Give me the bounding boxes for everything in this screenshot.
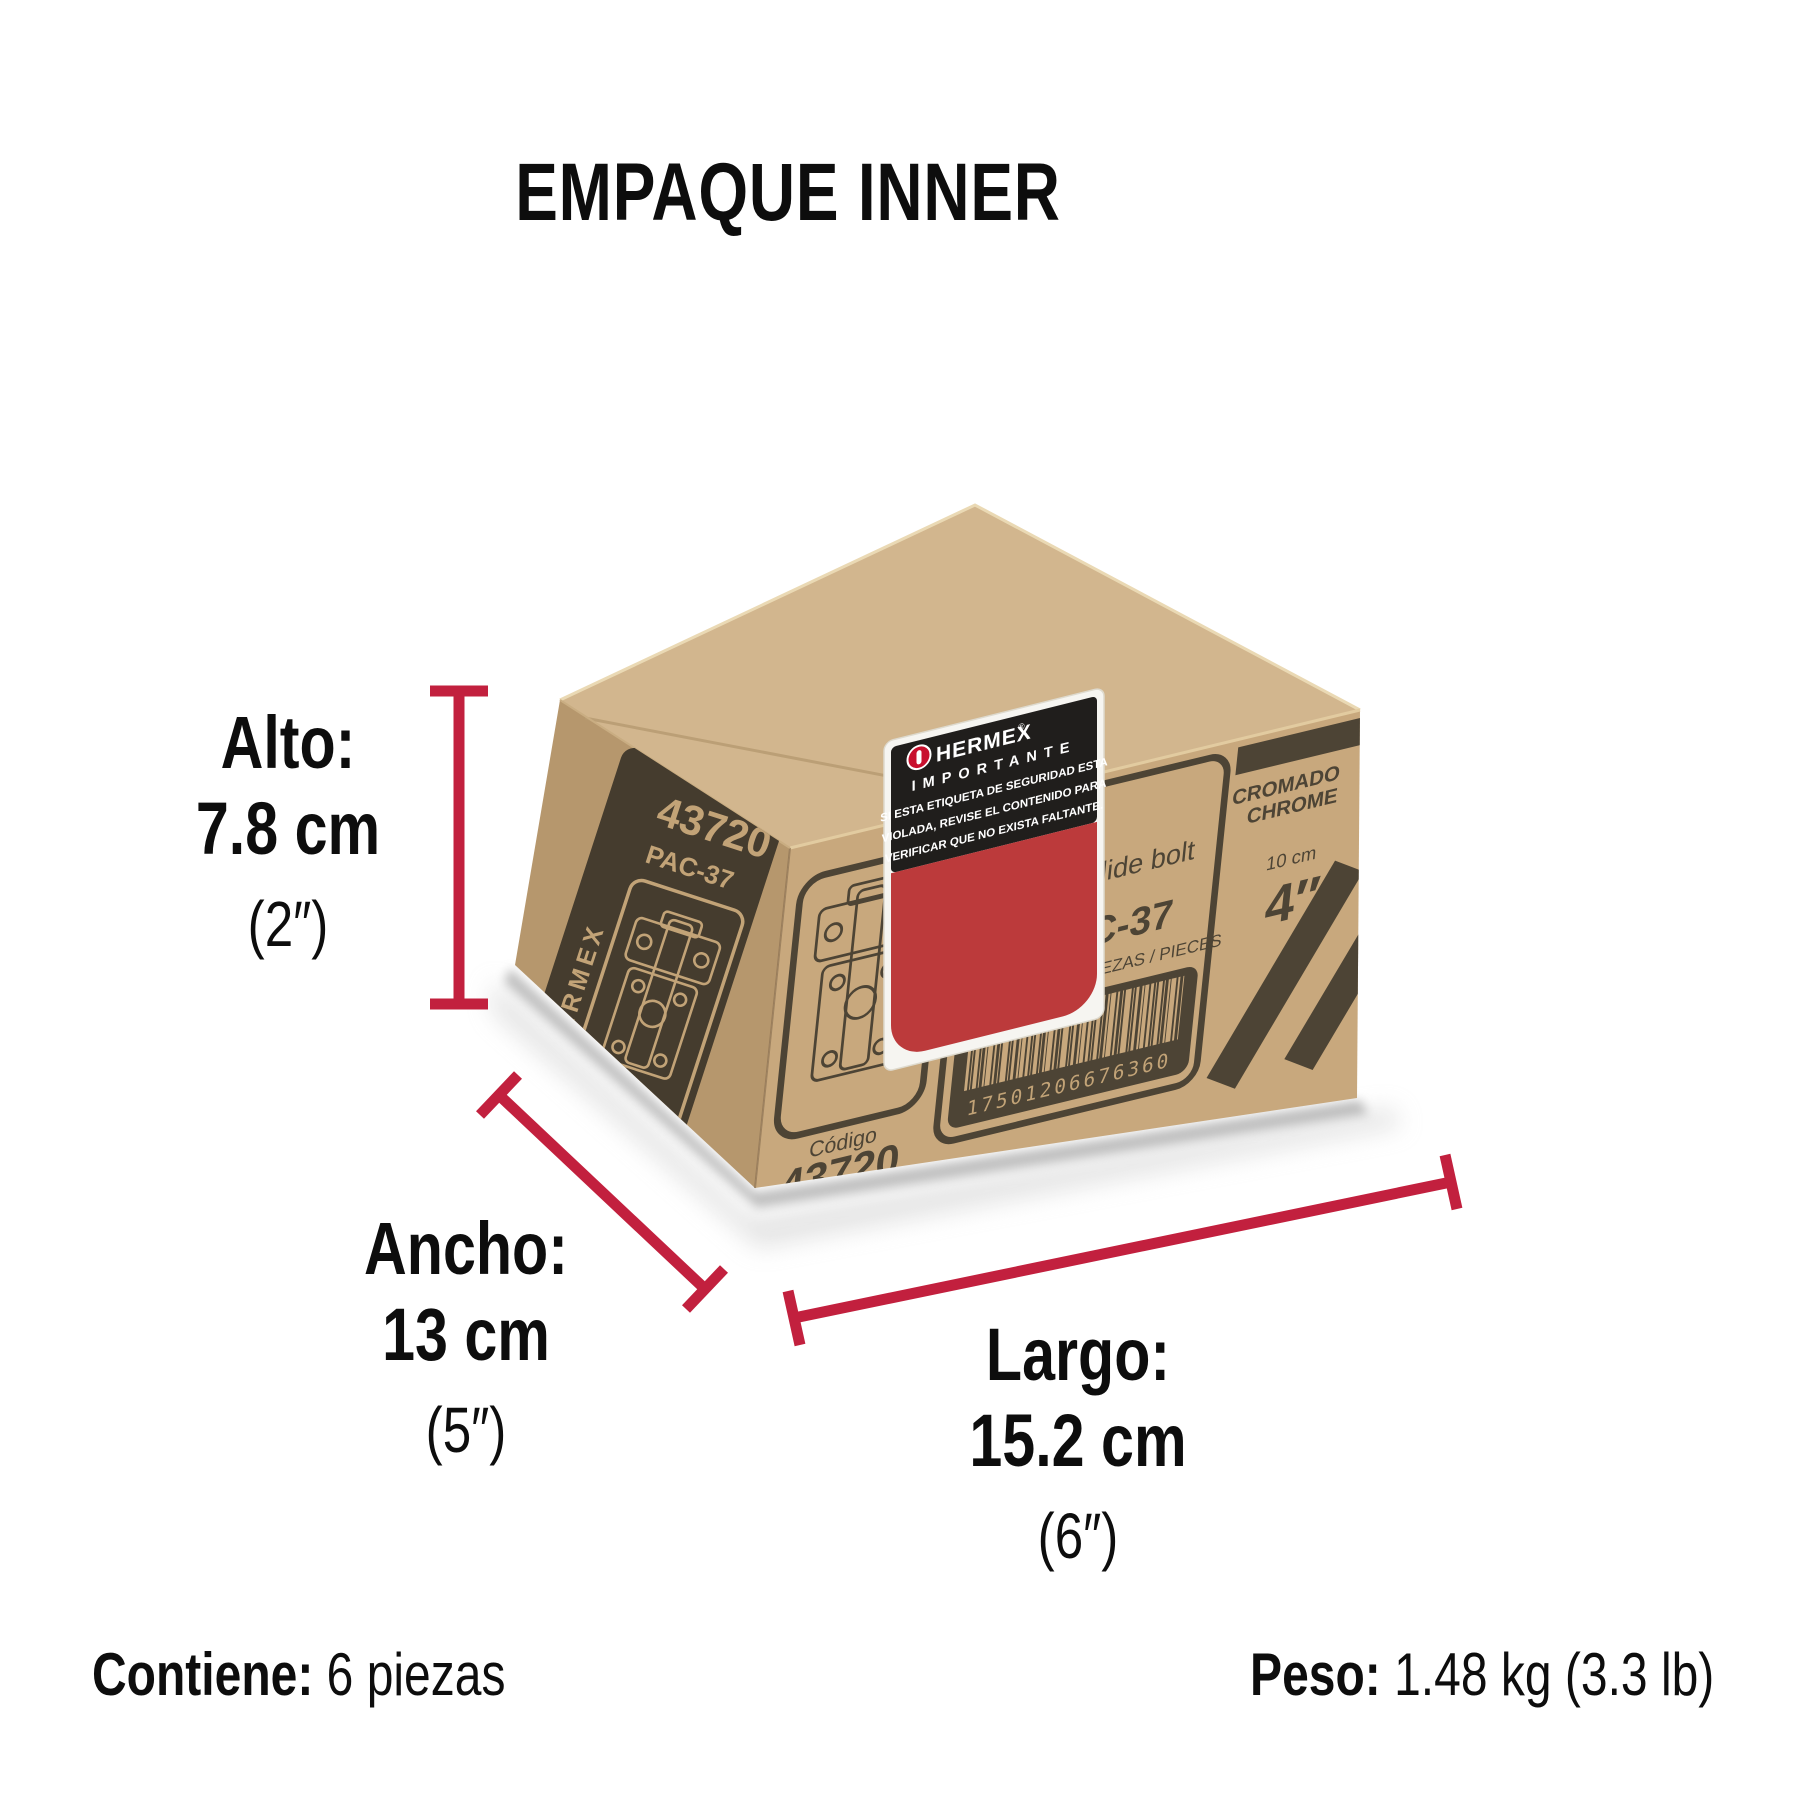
hermex-logo-dot (545, 1068, 554, 1077)
weight-value: 1.48 kg (3.3 lb) (1380, 1641, 1714, 1708)
ancho-dimension-label: Ancho: 13 cm (5″) (346, 1206, 586, 1470)
alto-dimension-label: Alto: 7.8 cm (2″) (168, 700, 408, 964)
weight-label: Peso: (1250, 1641, 1381, 1708)
largo-value: 15.2 cm (958, 1398, 1198, 1484)
security-sticker: HERMEX ® IMPORTANTE SI ESTA ETIQUETA DE … (880, 686, 1108, 1073)
ancho-value: 13 cm (346, 1292, 586, 1378)
contains-label: Contiene: (92, 1641, 313, 1708)
largo-cap-left (788, 1291, 800, 1345)
hermex-logo-figure (917, 750, 922, 765)
contains-line: Contiene: 6 piezas (92, 1640, 505, 1709)
alto-value: 7.8 cm (168, 786, 408, 872)
ancho-label: Ancho: (346, 1206, 586, 1292)
largo-inches: (6″) (958, 1484, 1198, 1576)
product-packaging-figure: EMPAQUE INNER (0, 0, 1800, 1800)
sticker-reg-mark: ® (1018, 721, 1025, 733)
ancho-inches: (5″) (346, 1378, 586, 1470)
largo-dimension-label: Largo: 15.2 cm (6″) (958, 1312, 1198, 1576)
alto-inches: (2″) (168, 872, 408, 964)
weight-line: Peso: 1.48 kg (3.3 lb) (1250, 1640, 1714, 1709)
largo-cap-right (1445, 1155, 1457, 1209)
contains-value: 6 piezas (313, 1641, 505, 1708)
alto-label: Alto: (168, 700, 408, 786)
largo-label: Largo: (958, 1312, 1198, 1398)
